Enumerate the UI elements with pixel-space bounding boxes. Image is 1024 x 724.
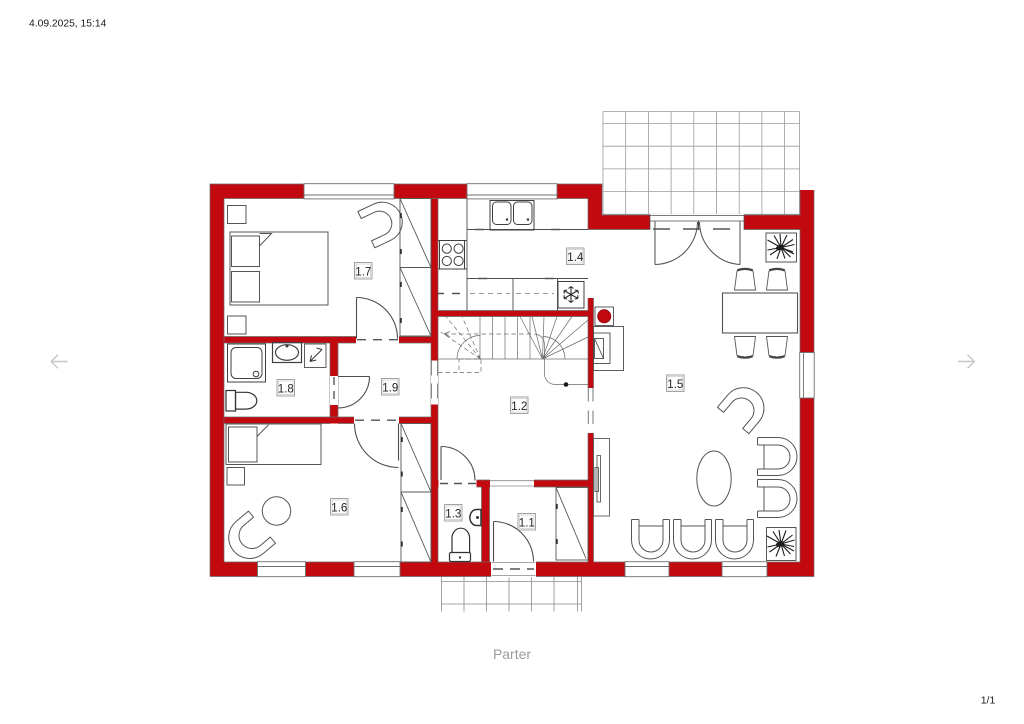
svg-text:1.3: 1.3 (445, 509, 461, 521)
svg-text:1.6: 1.6 (331, 503, 347, 515)
svg-text:1.9: 1.9 (382, 383, 398, 395)
svg-text:4.09.2025, 15:14: 4.09.2025, 15:14 (29, 19, 107, 30)
svg-text:1.2: 1.2 (511, 401, 527, 413)
svg-text:1/1: 1/1 (981, 695, 996, 707)
svg-text:1.5: 1.5 (667, 379, 683, 391)
svg-text:1.1: 1.1 (519, 518, 535, 530)
svg-text:1.7: 1.7 (355, 267, 371, 279)
svg-text:1.4: 1.4 (567, 252, 584, 264)
svg-text:Parter: Parter (493, 646, 531, 662)
svg-text:1.8: 1.8 (278, 384, 294, 396)
